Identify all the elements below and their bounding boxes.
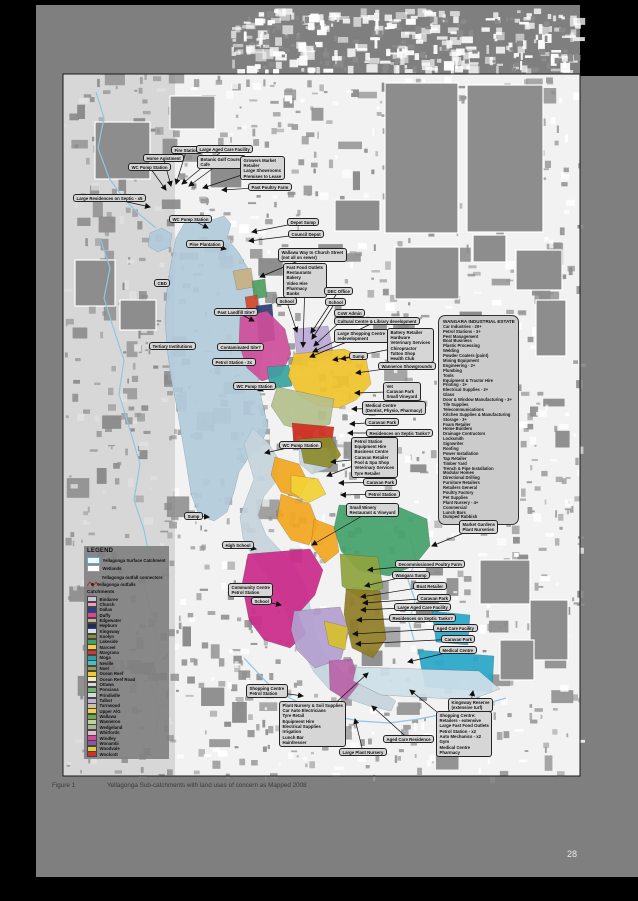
figure-caption: Figure 1 Yellagonga Sub-catchments with … xyxy=(52,782,307,789)
catchment-legend-row: Woolcott xyxy=(87,751,166,756)
urban-block xyxy=(530,600,568,660)
map-callout-line: Cultural Centre & Library development xyxy=(338,319,417,324)
figure-caption-text: Yellagonga Sub-catchments with land uses… xyxy=(107,782,307,789)
map-callout-line: Petrol Station xyxy=(369,492,397,497)
map-callout: Caravan Park xyxy=(441,635,475,643)
catchment-name: Upper A/G xyxy=(100,709,121,714)
catchment-name: Edgewater xyxy=(100,618,122,623)
legend-symbol-items: Yellagonga Surface CatchmentWetlandsYell… xyxy=(87,557,166,587)
catchment-name: Margrana xyxy=(100,650,119,655)
map-callout: Large Residences on Septic - x5 xyxy=(73,194,146,202)
catchment-name: Ottawa xyxy=(100,682,114,687)
map-callout: Petrol Station xyxy=(365,490,400,498)
industrial-estate-box: WANGARA INDUSTRIAL ESTATE Car Industries… xyxy=(438,315,519,525)
map-callout-line: Residences on Septic Tanks? xyxy=(370,431,430,436)
industrial-estate-list: Car Industries - 20+Petrol Stations - 3+… xyxy=(443,325,515,521)
catchment-name: Whitfords xyxy=(100,730,120,735)
catchment-name: Noel xyxy=(100,666,109,671)
legend-title: LEGEND xyxy=(87,548,166,554)
urban-block xyxy=(75,260,115,306)
map-callout: Past Landfill Site? xyxy=(214,308,258,316)
map-callout: WC Pump Station xyxy=(169,215,212,223)
catchment-name: Ocean Reef xyxy=(100,671,124,676)
map-callout: High School xyxy=(222,541,254,549)
map-callout-line: Hairdresser xyxy=(283,740,343,745)
map-callout-line: Petrol Station xyxy=(232,590,270,595)
legend-item-label: Yellagonga outfalls xyxy=(97,582,136,587)
document-page: WC Pump StationHorse AgistmentFire Stati… xyxy=(0,0,638,901)
map-callout: Sump xyxy=(349,352,368,360)
map-callout-line: CoW Admin xyxy=(338,311,362,316)
map-callout-line: Large Aged Care Facility xyxy=(398,605,448,610)
map-callout-line: WC Pump Station xyxy=(237,384,273,389)
map-callout-line: Large Showrooms xyxy=(244,168,282,173)
map-callout: Contaminated Site? xyxy=(217,343,264,351)
map-callout: Large Aged Care Facility xyxy=(394,603,451,611)
map-callout: Petrol Station - 2x xyxy=(212,358,256,366)
map-callout-line: Wanneroo Showgrounds xyxy=(382,364,433,369)
map-callout: Large Aged Care Facility xyxy=(196,145,253,153)
region-edgewater-tan xyxy=(233,268,254,290)
map-callout: WC Pump Station xyxy=(233,382,276,390)
map-callout: Small WineryRestaurant & Vineyard xyxy=(346,503,399,517)
map-callout-line: Sump xyxy=(353,354,365,359)
map-callout: Community CentrePetrol Station xyxy=(228,583,273,597)
map-callout-line: WC Pump Station xyxy=(283,443,319,448)
map-callout: Pine Plantation xyxy=(186,240,224,248)
urban-block xyxy=(395,247,459,299)
map-callout: Fast Food OutletsRestaurantsBakeryVideo … xyxy=(283,263,327,298)
map-callout: Decommissioned Poultry Farm xyxy=(395,560,465,568)
map-callout: Depot Sump xyxy=(287,218,319,226)
catchment-name: Ocean Reef Road xyxy=(100,677,136,682)
map-callout-line: Business Centre xyxy=(355,449,395,454)
map-callout: Cultural Centre & Library development xyxy=(334,317,420,325)
catchment-name: Hepburn xyxy=(100,623,118,628)
map-callout-line: redevelopment xyxy=(338,336,386,341)
catchment-name: Wallawa xyxy=(100,714,117,719)
map-callout-line: Banks xyxy=(287,291,324,296)
urban-block xyxy=(473,235,506,262)
map-callout: Horse Agistment xyxy=(143,154,184,162)
map-callout-line: Caravan Park xyxy=(369,420,396,425)
map-callout-line: Caravan Park xyxy=(445,637,472,642)
catchment-name: Turnwood xyxy=(100,703,120,708)
legend-item-label: Yellagonga Surface Catchment xyxy=(103,558,166,563)
map-callout-line: Caravan Park xyxy=(421,596,448,601)
page-number: 28 xyxy=(567,849,577,859)
catchment-name: Wanneroo xyxy=(100,719,121,724)
map-callout-line: Medical Centre xyxy=(443,648,474,653)
map-callout-line: Petrol Station xyxy=(250,691,285,696)
map-callout: Caravan Park xyxy=(363,478,397,486)
map-callout-line: Premises to Lease xyxy=(244,174,282,179)
catchment-color-swatch xyxy=(87,751,97,757)
map-callout-line: High School xyxy=(226,543,251,548)
catchment-name: Ponciana xyxy=(100,687,119,692)
map-callout: CBD xyxy=(154,279,170,287)
urban-block xyxy=(516,250,562,290)
urban-block xyxy=(536,300,566,356)
catchment-symbol xyxy=(87,557,100,564)
catchment-name: Windley xyxy=(100,736,116,741)
legend-item: Yellagonga Surface Catchment xyxy=(87,557,166,564)
map-callout: Medical Centre(Dentist, Physio, Pharmacy… xyxy=(362,401,426,415)
catchment-name: Woolcott xyxy=(100,752,118,757)
catchment-swatch-list: BindareeChurchDallasDuffyEdgewaterHepbur… xyxy=(87,596,166,756)
map-callout: Plant Nursery & Soil SuppliesCar Auto El… xyxy=(279,701,346,747)
map-callout-line: Pharmacy xyxy=(440,750,489,755)
map-callout: VetCaravan ParkSmall Vineyard xyxy=(383,382,421,401)
map-callout-line: Past Poultry Farm xyxy=(252,185,289,190)
map-callout-line: Tyre Retailer xyxy=(355,471,395,476)
map-callout-line: School xyxy=(280,299,294,304)
map-callout-line: School xyxy=(329,300,343,305)
map-callout: Petrol StationEquipment HireBusiness Cen… xyxy=(351,437,398,478)
legend-item: Yellagonga outfalls xyxy=(87,582,166,587)
map-callout: Caravan Park xyxy=(417,594,451,602)
map-callout-line: DEC Office xyxy=(328,289,350,294)
urban-block xyxy=(500,640,534,680)
map-callout: Medical Centre xyxy=(439,646,477,654)
map-callout: Aged Care Facility xyxy=(433,624,478,632)
map-callout-line: Depot Sump xyxy=(291,220,316,225)
catchment-name: Church xyxy=(100,602,115,607)
map-callout: Boat Retailer xyxy=(413,582,447,590)
map-callout-line: Decommissioned Poultry Farm xyxy=(399,562,462,567)
map-callout: School xyxy=(276,297,297,305)
map-callout-line: Large Aged Care Facility xyxy=(200,147,250,152)
map-callout: Caravan Park xyxy=(365,418,399,426)
catchment-name: Prindiville xyxy=(100,693,121,698)
catchment-name: Neville xyxy=(100,661,114,666)
catchment-name: Koolyn xyxy=(100,634,115,639)
catchment-name: Duffy xyxy=(100,613,111,618)
map-legend: LEGEND Yellagonga Surface CatchmentWetla… xyxy=(84,546,169,759)
map-callout: School xyxy=(325,298,346,306)
map-callout-line: Large Residences on Septic - x5 xyxy=(77,196,143,201)
map-callout: Sump xyxy=(184,512,203,520)
catchment-name: Marceel xyxy=(100,645,116,650)
catchment-name: Wonambi xyxy=(100,741,119,746)
catchment-name: Moga xyxy=(100,655,111,660)
map-callout-line: (not all on sewer) xyxy=(282,255,344,260)
map-callout-line: Residences on Septic Tanks? xyxy=(393,616,453,621)
catchment-name: Dallas xyxy=(100,607,113,612)
catchment-map xyxy=(0,0,638,901)
connector-symbol xyxy=(87,574,99,580)
map-callout-line: Fire Station xyxy=(175,148,199,153)
map-callout-line: Aged Care Facility xyxy=(437,626,475,631)
map-callout: Wangara Sump xyxy=(392,571,430,579)
map-callout-line: Wangara Sump xyxy=(396,573,427,578)
map-callout: Shopping Centre:Retailers - extensiveLar… xyxy=(436,711,492,757)
outfall-symbol xyxy=(91,583,94,586)
map-callout-line: (extensive turf) xyxy=(452,705,490,710)
map-callout: Growers MarketRetailerLarge ShowroomsPre… xyxy=(240,156,285,180)
map-callout: School xyxy=(251,597,272,605)
catchment-name: Woodvale xyxy=(100,746,120,751)
urban-block xyxy=(480,560,530,604)
map-callout-line: Large Fast Food Outlets xyxy=(440,723,489,728)
catchment-name: Wedgeland xyxy=(100,725,123,730)
map-callout: Past Poultry Farm xyxy=(248,183,292,191)
map-callout-line: Past Landfill Site? xyxy=(218,310,255,315)
map-callout-line: Contaminated Site? xyxy=(221,345,261,350)
map-callout: Battery RetailerHardwareVeterinary Servi… xyxy=(387,328,434,363)
map-callout: Large Plant Nursery xyxy=(339,748,387,756)
urban-block xyxy=(170,96,215,129)
map-callout: DEC Office xyxy=(324,287,353,295)
map-callout: Tertiary Institutions xyxy=(149,342,196,350)
map-callout: Large Shopping Centreredevelopment xyxy=(334,329,389,343)
catchment-name: Kingsway xyxy=(100,629,120,634)
map-callout-line: Restaurant & Vineyard xyxy=(350,510,396,515)
catchment-name: Lakeside xyxy=(100,639,118,644)
map-callout-line: Veterinary Services xyxy=(391,340,431,345)
map-callout-line: (Dentist, Physio, Pharmacy) xyxy=(366,408,423,413)
map-callout-line: Cafe xyxy=(201,162,243,167)
map-callout-line: Veterinary Services xyxy=(355,465,395,470)
urban-block xyxy=(120,300,156,330)
map-callout-line: Caravan Park xyxy=(367,480,394,485)
map-callout-line: Council Depot xyxy=(292,232,321,237)
map-callout-line: Pine Plantation xyxy=(190,242,221,247)
map-callout: Botanic Golf CourseCafe xyxy=(197,155,246,169)
black-corner xyxy=(580,0,638,76)
map-callout-line: Aged Care Residence xyxy=(387,737,431,742)
map-callout-line: Tertiary Institutions xyxy=(153,344,193,349)
map-callout-line: Small Vineyard xyxy=(387,394,418,399)
urban-block xyxy=(385,83,458,233)
map-callout: Shopping CentrePetrol Station xyxy=(246,684,288,698)
map-callout-line: CBD xyxy=(158,281,167,286)
map-callout: Council Depot xyxy=(288,230,324,238)
catchments-title: Catchments xyxy=(87,590,166,595)
legend-item: Yellagonga outfall connectors xyxy=(87,574,166,580)
wetland-symbol xyxy=(87,565,100,572)
map-callout: Aged Care Residence xyxy=(383,735,434,743)
map-callout: Residences on Septic Tanks? xyxy=(389,614,456,622)
legend-item-label: Yellagonga outfall connectors xyxy=(102,575,163,580)
map-callout-line: Horse Agistment xyxy=(147,156,181,161)
urban-block xyxy=(335,200,380,231)
map-callout-line: Plant Nurseries xyxy=(463,527,495,532)
map-callout-line: WC Pump Station xyxy=(132,165,168,170)
map-callout: Wallawa Way to Church Street(not all on … xyxy=(278,248,347,262)
legend-item: Wetlands xyxy=(87,565,166,572)
map-callout-line: Boat Retailer xyxy=(417,584,444,589)
map-callout-line: School xyxy=(255,599,269,604)
figure-label: Figure 1 xyxy=(52,782,107,789)
map-callout-line: WC Pump Station xyxy=(173,217,209,222)
urban-block xyxy=(467,85,543,232)
map-callout: Wanneroo Showgrounds xyxy=(378,362,436,370)
map-callout: Market GardensPlant Nurseries xyxy=(459,520,498,534)
map-callout: Kingsway Reserve(extensive turf) xyxy=(448,698,493,712)
map-callout-line: Petrol Station - 2x xyxy=(216,360,253,365)
map-callout-line: Health Club xyxy=(391,356,431,361)
map-callout-line: Sump xyxy=(188,514,200,519)
map-callout: WC Pump Station xyxy=(279,441,322,449)
map-callout-line: Large Plant Nursery xyxy=(343,750,384,755)
legend-item-label: Wetlands xyxy=(103,566,122,571)
catchment-name: Bindaree xyxy=(100,597,118,602)
catchment-name: Talbot xyxy=(100,698,113,703)
map-callout: WC Pump Station xyxy=(128,163,171,171)
